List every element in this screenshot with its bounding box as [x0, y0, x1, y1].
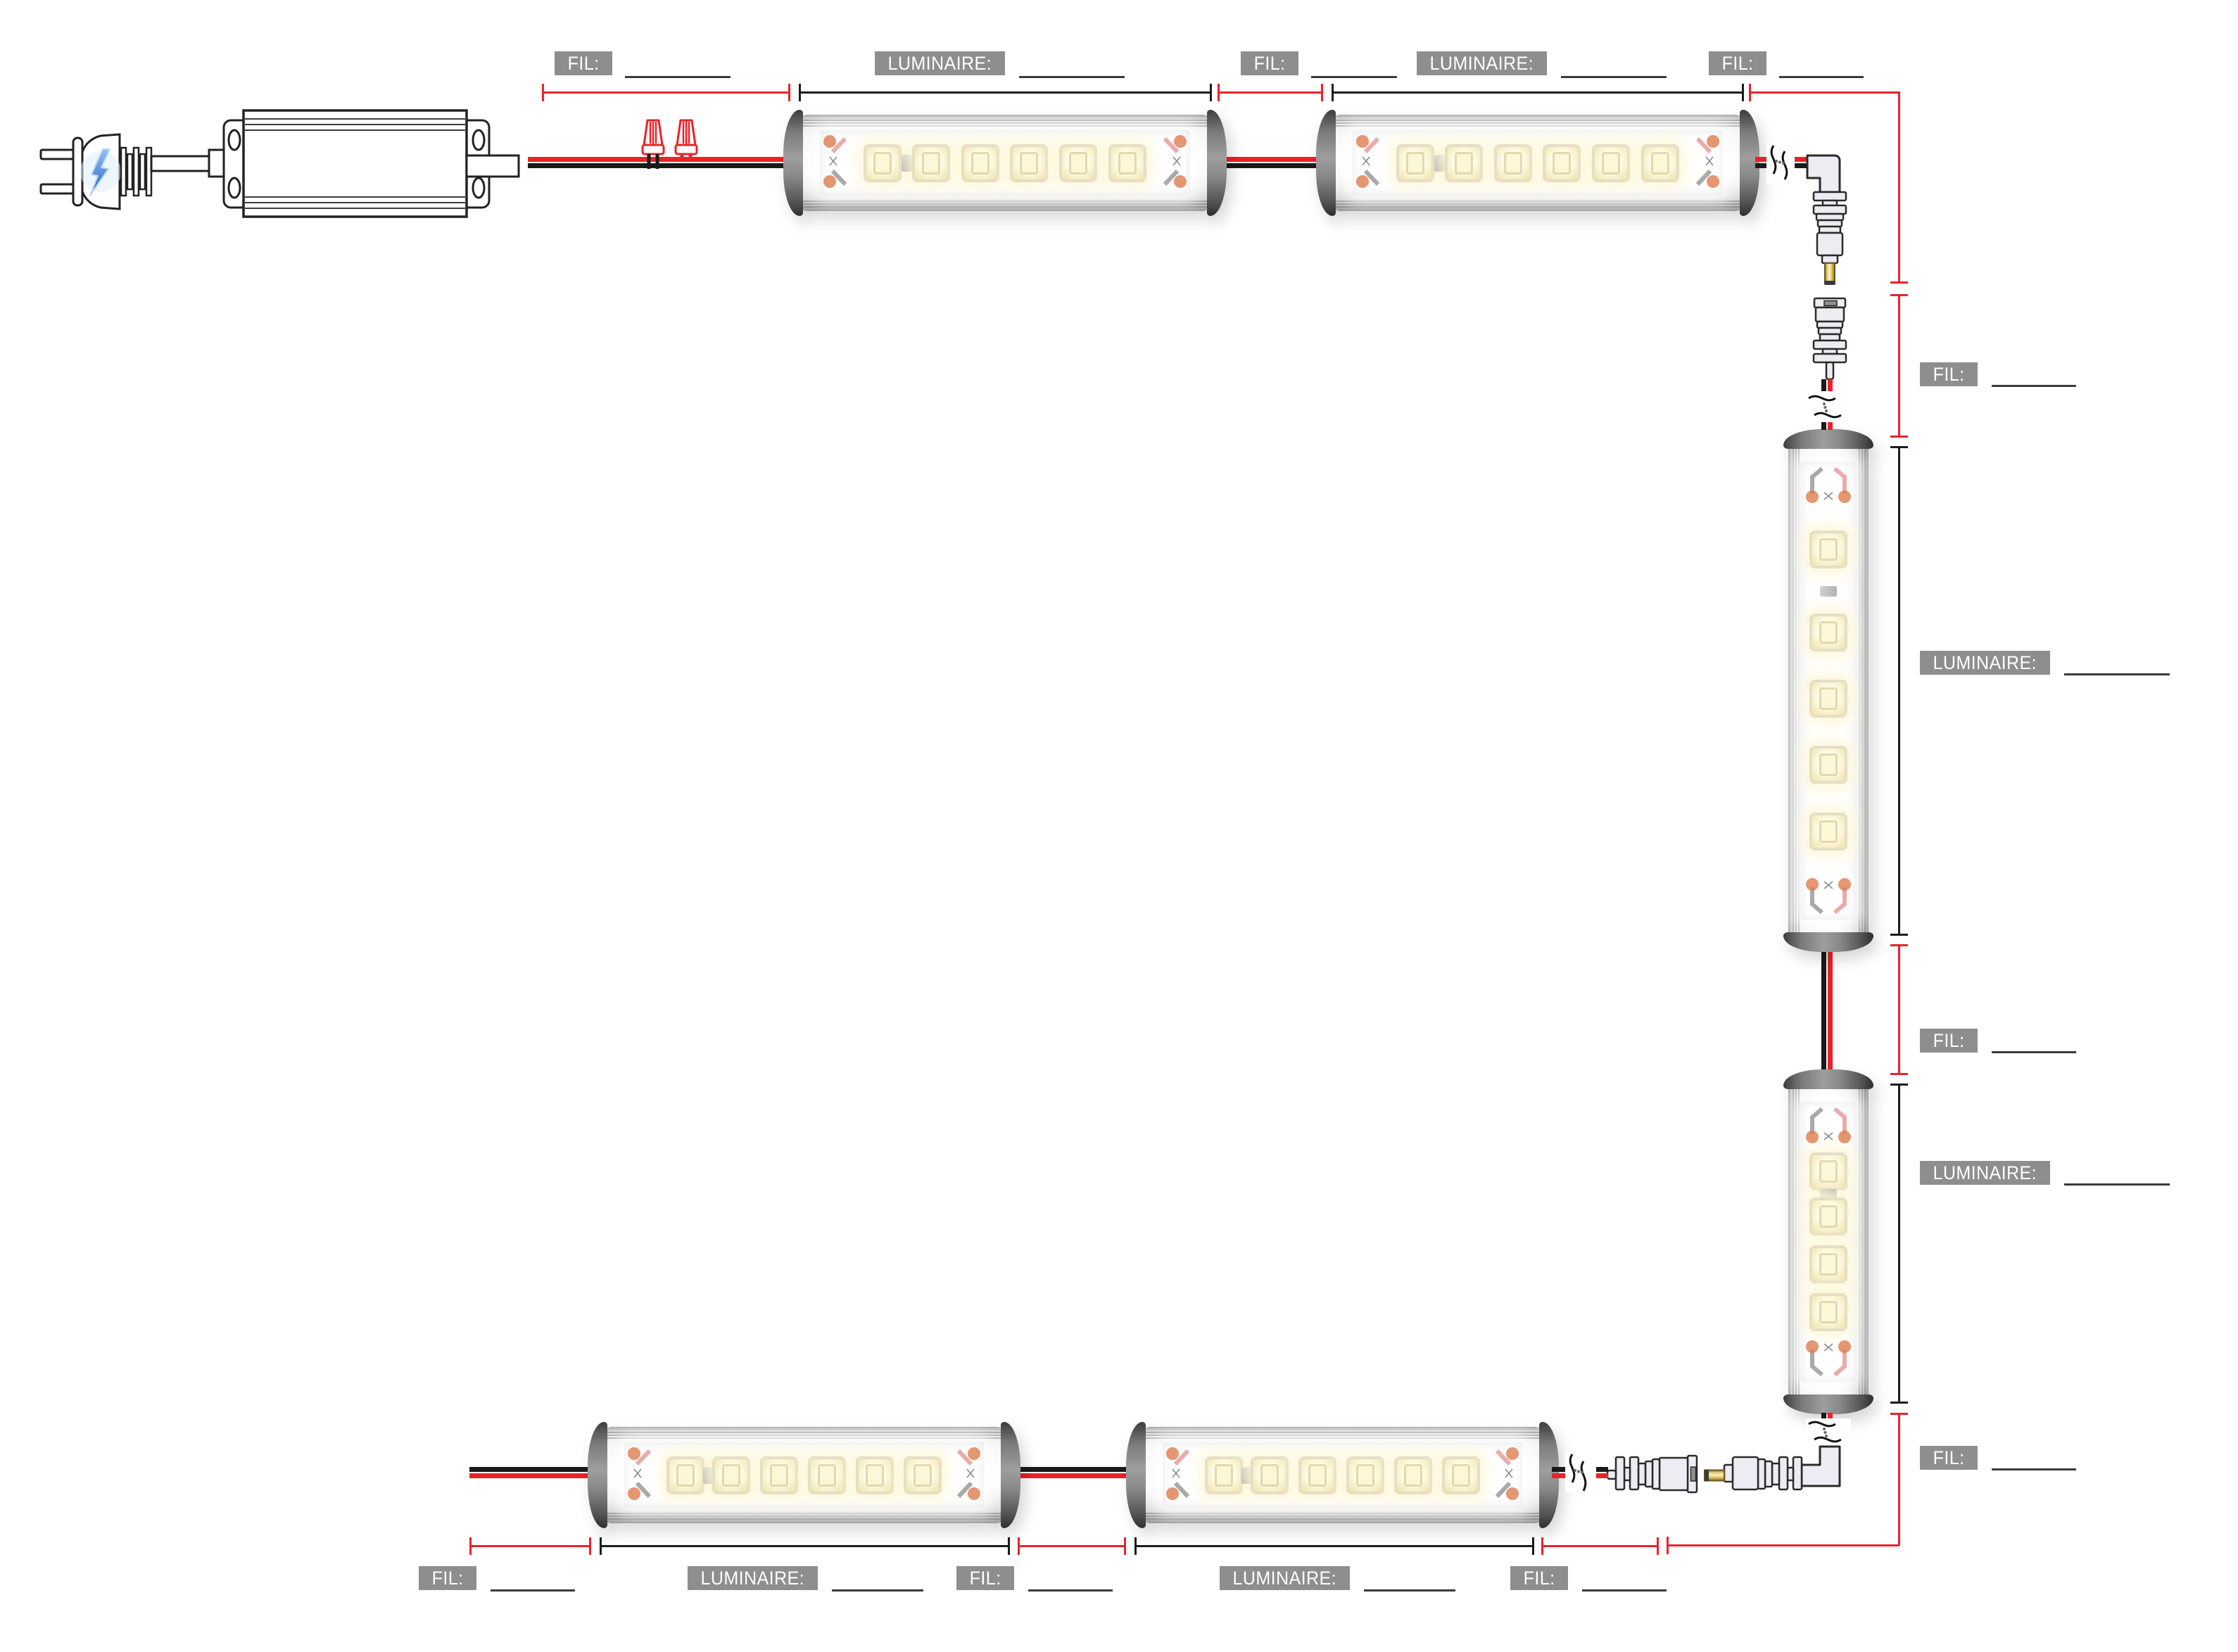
solder-clip-icon [1164, 1442, 1196, 1505]
dimension-luminaire [799, 91, 1212, 94]
pin-tip [1824, 281, 1835, 285]
led-chip [1442, 1456, 1480, 1494]
solder-clip-icon [950, 1442, 982, 1505]
dimension-fil-corner [1749, 91, 1899, 94]
dimension-luminaire [1898, 446, 1900, 936]
led-chip [856, 1456, 894, 1494]
dimension-luminaire [600, 1545, 1010, 1547]
led-chip [1108, 144, 1146, 182]
solder-clip-icon [1156, 130, 1189, 193]
luminaire-blank-line [1364, 1589, 1455, 1591]
solder-clip-icon [1801, 1337, 1856, 1380]
led-strip-panel [1800, 462, 1857, 920]
dimension-fil-corner [1667, 1544, 1899, 1546]
dc-connector-pair-top [1752, 137, 1907, 436]
luminaire-blank-line [1561, 76, 1667, 78]
led-chip [1809, 614, 1847, 652]
fil-blank-line [625, 76, 731, 78]
dimension-fil [1018, 1545, 1126, 1547]
solder-clip-icon [1801, 875, 1856, 918]
fil-blank-line [1992, 1468, 2076, 1470]
luminaire-right-2 [1785, 1069, 1872, 1414]
dc-connector-pair-bottom [1548, 1404, 1900, 1499]
dimension-luminaire [1134, 1545, 1534, 1547]
supply-cord [151, 156, 209, 171]
led-chip [1394, 1456, 1432, 1494]
end-cap [588, 1422, 607, 1528]
wire-black [469, 1467, 593, 1472]
led-chip [1494, 144, 1532, 182]
smd-component [902, 155, 912, 172]
led-chip [760, 1456, 798, 1494]
pin-tip [1705, 1470, 1709, 1482]
led-chip [1809, 1293, 1847, 1331]
led-chip [666, 1456, 704, 1494]
led-chip [1809, 1245, 1847, 1283]
dc-female-jack-up [1814, 298, 1846, 379]
led-chip [1809, 1197, 1847, 1235]
dc-female-jack-right [1607, 1456, 1697, 1492]
gold-pin [1825, 263, 1835, 283]
fil-blank-line [1311, 76, 1397, 78]
jack-slot [1691, 1467, 1696, 1481]
dimension-luminaire [1332, 91, 1744, 94]
wire-black [1821, 946, 1826, 1074]
dimension-fil [1898, 944, 1900, 1075]
luminaire-blank-line [832, 1589, 923, 1591]
led-chip [1251, 1456, 1289, 1494]
led-chip [712, 1456, 750, 1494]
led-strip-panel [1800, 1102, 1857, 1382]
led-chip [1543, 144, 1581, 182]
luminaire-bottom-left [588, 1427, 1020, 1523]
led-strip-panel [1163, 1442, 1522, 1508]
luminaire-label: LUMINAIRE: [1920, 651, 2050, 675]
led-chip [912, 144, 950, 182]
wire-red [1017, 1473, 1131, 1478]
led-chip [864, 144, 902, 182]
fil-label: FIL: [1241, 51, 1298, 75]
luminaire-top-1 [783, 115, 1227, 211]
dimension-fil [469, 1545, 591, 1547]
fil-label: FIL: [1920, 362, 1978, 386]
fil-label: FIL: [1510, 1566, 1568, 1590]
solder-clip-icon [1801, 463, 1856, 507]
wire-red [469, 1473, 593, 1478]
wire-break-icon [1766, 143, 1795, 184]
luminaire-label: LUMINAIRE: [875, 51, 1005, 75]
end-cap [783, 110, 803, 216]
led-chip [1809, 1152, 1847, 1190]
end-cap [1316, 110, 1336, 216]
led-chip [961, 144, 999, 182]
solder-clip-icon [1801, 1103, 1856, 1147]
fil-label: FIL: [1709, 51, 1766, 75]
luminaire-blank-line [1019, 76, 1125, 78]
luminaire-blank-line [2064, 673, 2170, 675]
fil-blank-line [1028, 1589, 1113, 1591]
end-cap [1783, 1069, 1873, 1089]
luminaire-label: LUMINAIRE: [1920, 1161, 2050, 1185]
led-chip [1809, 530, 1847, 568]
fil-blank-line [491, 1589, 575, 1591]
fil-label: FIL: [555, 51, 612, 75]
led-strip-panel [820, 130, 1190, 196]
end-cap [1126, 1422, 1146, 1528]
end-cap [1207, 110, 1227, 216]
led-chip [1809, 813, 1847, 851]
fil-blank-line [1992, 1051, 2076, 1053]
fil-label: FIL: [956, 1566, 1014, 1590]
dimension-fil [542, 91, 790, 94]
fil-label: FIL: [419, 1566, 476, 1590]
led-strip-panel [624, 1442, 984, 1508]
dimension-fil [1541, 1545, 1659, 1547]
dimension-fil-corner [1898, 1413, 1900, 1546]
luminaire-top-2 [1316, 115, 1759, 211]
dimension-fil [1898, 294, 1900, 438]
led-chip [1592, 144, 1630, 182]
wire-red [1828, 946, 1833, 1074]
solder-clip-icon [1354, 130, 1386, 193]
led-chip [1396, 144, 1434, 182]
jack-slot [1824, 301, 1837, 306]
led-strip-panel [1353, 130, 1723, 196]
solder-clip-icon [1689, 130, 1721, 193]
wire-black [1017, 1467, 1131, 1472]
solder-clip-icon [1488, 1442, 1521, 1505]
fil-blank-line [1582, 1589, 1667, 1591]
smd-component [1820, 586, 1837, 597]
luminaire-right-1 [1785, 429, 1872, 952]
led-wiring-diagram: FIL: LUMINAIRE: FIL: LUMINAIRE: FIL: FIL… [0, 0, 2238, 1652]
dc-male-plug-down [1807, 155, 1846, 263]
end-cap [1783, 932, 1873, 952]
end-cap [1001, 1422, 1020, 1528]
led-chip [1346, 1456, 1384, 1494]
dimension-fil [1218, 91, 1323, 94]
led-chip [904, 1456, 942, 1494]
dc-male-plug-left [1724, 1447, 1840, 1489]
strain-relief [121, 148, 151, 196]
fil-blank-line [1992, 385, 2076, 387]
led-chip [1809, 746, 1847, 784]
led-chip [1059, 144, 1097, 182]
luminaire-label: LUMINAIRE: [1417, 51, 1547, 75]
dimension-luminaire [1898, 1084, 1900, 1404]
smd-component [1434, 155, 1445, 172]
solder-clip-icon [821, 130, 854, 193]
power-supply [35, 99, 528, 239]
led-chip [1298, 1456, 1336, 1494]
luminaire-label: LUMINAIRE: [688, 1566, 818, 1590]
wire-connector-marrette [672, 118, 700, 173]
luminaire-bottom-right [1126, 1427, 1559, 1523]
wire-connector-marrette [639, 118, 667, 173]
wire-red [1221, 157, 1321, 162]
led-chip [808, 1456, 846, 1494]
fil-label: FIL: [1920, 1029, 1978, 1053]
led-chip [1445, 144, 1483, 182]
luminaire-label: LUMINAIRE: [1220, 1566, 1350, 1590]
wire-break-icon [1565, 1451, 1596, 1492]
led-chip [1010, 144, 1048, 182]
luminaire-blank-line [2064, 1183, 2170, 1186]
led-chip [1205, 1456, 1243, 1494]
solder-clip-icon [626, 1442, 658, 1505]
fil-blank-line [1779, 76, 1864, 78]
driver-box [224, 110, 519, 217]
dimension-fil-corner [1898, 91, 1900, 284]
wire-break-icon [1806, 391, 1851, 422]
wire-break-icon [1806, 1418, 1851, 1447]
led-chip [1641, 144, 1679, 182]
wire-black [1221, 163, 1321, 168]
led-chip [1809, 680, 1847, 718]
fil-label: FIL: [1920, 1446, 1978, 1470]
